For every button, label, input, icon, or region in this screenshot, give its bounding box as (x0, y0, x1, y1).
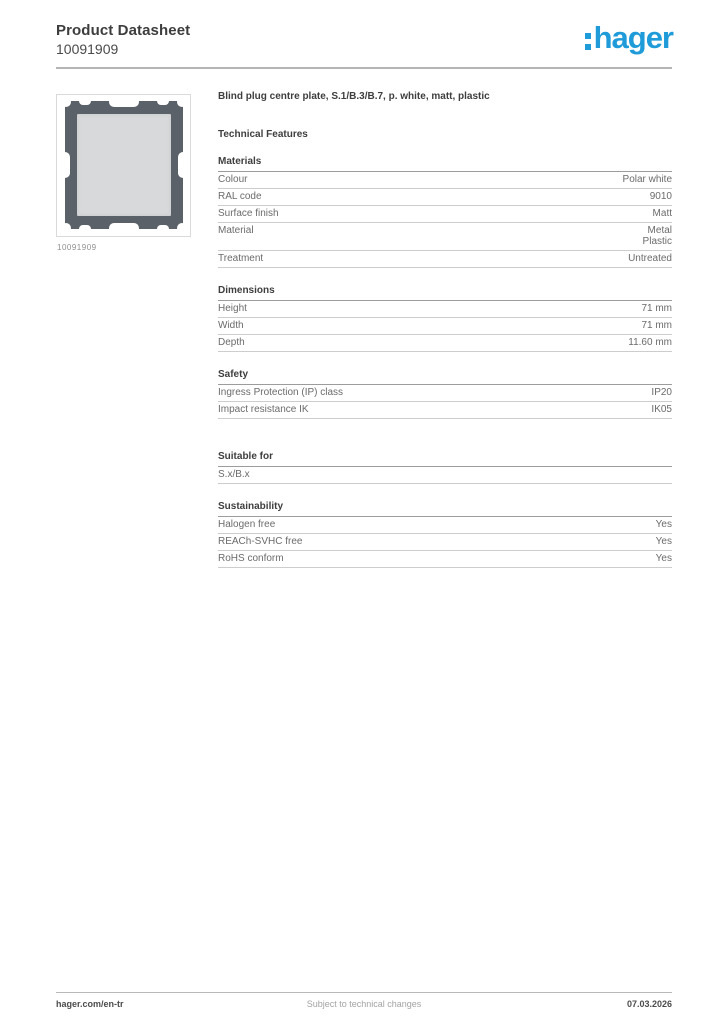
product-title: Blind plug centre plate, S.1/B.3/B.7, p.… (218, 91, 672, 103)
spec-label: RoHS conform (218, 553, 284, 564)
spec-row: Impact resistance IKIK05 (218, 402, 672, 419)
product-plate-graphic (77, 114, 171, 216)
frame-corner-notch (61, 223, 71, 233)
frame-edge-notch (109, 223, 139, 230)
page-title: Product Datasheet (56, 22, 190, 39)
spec-section-title: Safety (218, 369, 672, 385)
spec-value: 9010 (650, 191, 672, 202)
frame-edge-notch (157, 100, 169, 105)
spec-label: Width (218, 320, 244, 331)
spec-row: TreatmentUntreated (218, 251, 672, 268)
spec-value: 71 mm (641, 303, 672, 314)
frame-corner-notch (177, 97, 187, 107)
spec-row: RoHS conformYes (218, 551, 672, 568)
spec-row: S.x/B.x (218, 467, 672, 484)
frame-edge-notch (109, 100, 139, 107)
spec-row: Height71 mm (218, 301, 672, 318)
hager-logo-text: hager (594, 24, 673, 52)
product-image (56, 94, 191, 237)
spec-sections: MaterialsColourPolar whiteRAL code9010Su… (218, 156, 672, 568)
spec-section: SafetyIngress Protection (IP) classIP20I… (218, 369, 672, 419)
spec-label: Treatment (218, 253, 263, 264)
spec-value: IK05 (651, 404, 672, 415)
frame-corner-notch (177, 223, 187, 233)
spec-section-title: Dimensions (218, 285, 672, 301)
spec-row: Surface finishMatt (218, 206, 672, 223)
spec-value: Yes (656, 536, 672, 547)
spec-value: Polar white (623, 174, 672, 185)
spec-label: Height (218, 303, 247, 314)
spec-label: Impact resistance IK (218, 404, 309, 415)
spec-section: MaterialsColourPolar whiteRAL code9010Su… (218, 156, 672, 268)
spec-label: Ingress Protection (IP) class (218, 387, 343, 398)
spec-row: Depth11.60 mm (218, 335, 672, 352)
spec-value: 11.60 mm (628, 337, 672, 348)
spec-row: Halogen freeYes (218, 517, 672, 534)
spec-value: Matt (653, 208, 672, 219)
spec-row: Ingress Protection (IP) classIP20 (218, 385, 672, 402)
spec-row: MaterialMetal Plastic (218, 223, 672, 251)
frame-edge-notch (64, 152, 70, 178)
spec-label: Material (218, 225, 254, 236)
footer-divider (56, 992, 672, 993)
spec-label: Colour (218, 174, 247, 185)
spec-row: REACh-SVHC freeYes (218, 534, 672, 551)
footer-date: 07.03.2026 (627, 999, 672, 1009)
product-code: 10091909 (56, 41, 118, 57)
spec-label: Halogen free (218, 519, 275, 530)
spec-row: Width71 mm (218, 318, 672, 335)
spec-section-title: Sustainability (218, 501, 672, 517)
spec-value: Untreated (628, 253, 672, 264)
spec-label: Surface finish (218, 208, 279, 219)
spec-section: DimensionsHeight71 mmWidth71 mmDepth11.6… (218, 285, 672, 352)
spec-row: ColourPolar white (218, 172, 672, 189)
spec-value: IP20 (651, 387, 672, 398)
spec-label: RAL code (218, 191, 262, 202)
footer-disclaimer: Subject to technical changes (56, 999, 672, 1009)
spec-label: Depth (218, 337, 245, 348)
spec-value: Metal Plastic (643, 225, 672, 247)
frame-edge-notch (79, 225, 91, 230)
spec-section-title: Materials (218, 156, 672, 172)
frame-corner-notch (61, 97, 71, 107)
spec-section-title: Suitable for (218, 451, 672, 467)
spec-label: REACh-SVHC free (218, 536, 302, 547)
hager-logo: hager (585, 24, 673, 52)
spec-column: Blind plug centre plate, S.1/B.3/B.7, p.… (218, 91, 672, 568)
technical-features-heading: Technical Features (218, 129, 672, 141)
header-divider (56, 67, 672, 69)
frame-edge-notch (157, 225, 169, 230)
hager-logo-colon-icon (585, 33, 591, 52)
spec-value: Yes (656, 519, 672, 530)
spec-section: Suitable forS.x/B.x (218, 451, 672, 484)
spec-value: 71 mm (641, 320, 672, 331)
spec-section: SustainabilityHalogen freeYesREACh-SVHC … (218, 501, 672, 568)
frame-edge-notch (79, 100, 91, 105)
product-image-caption: 10091909 (57, 243, 97, 252)
spec-value: Yes (656, 553, 672, 564)
spec-label: S.x/B.x (218, 469, 250, 480)
product-frame-graphic (65, 101, 183, 229)
spec-row: RAL code9010 (218, 189, 672, 206)
datasheet-page: Product Datasheet 10091909 hager 1009190… (0, 0, 724, 1024)
frame-edge-notch (178, 152, 184, 178)
